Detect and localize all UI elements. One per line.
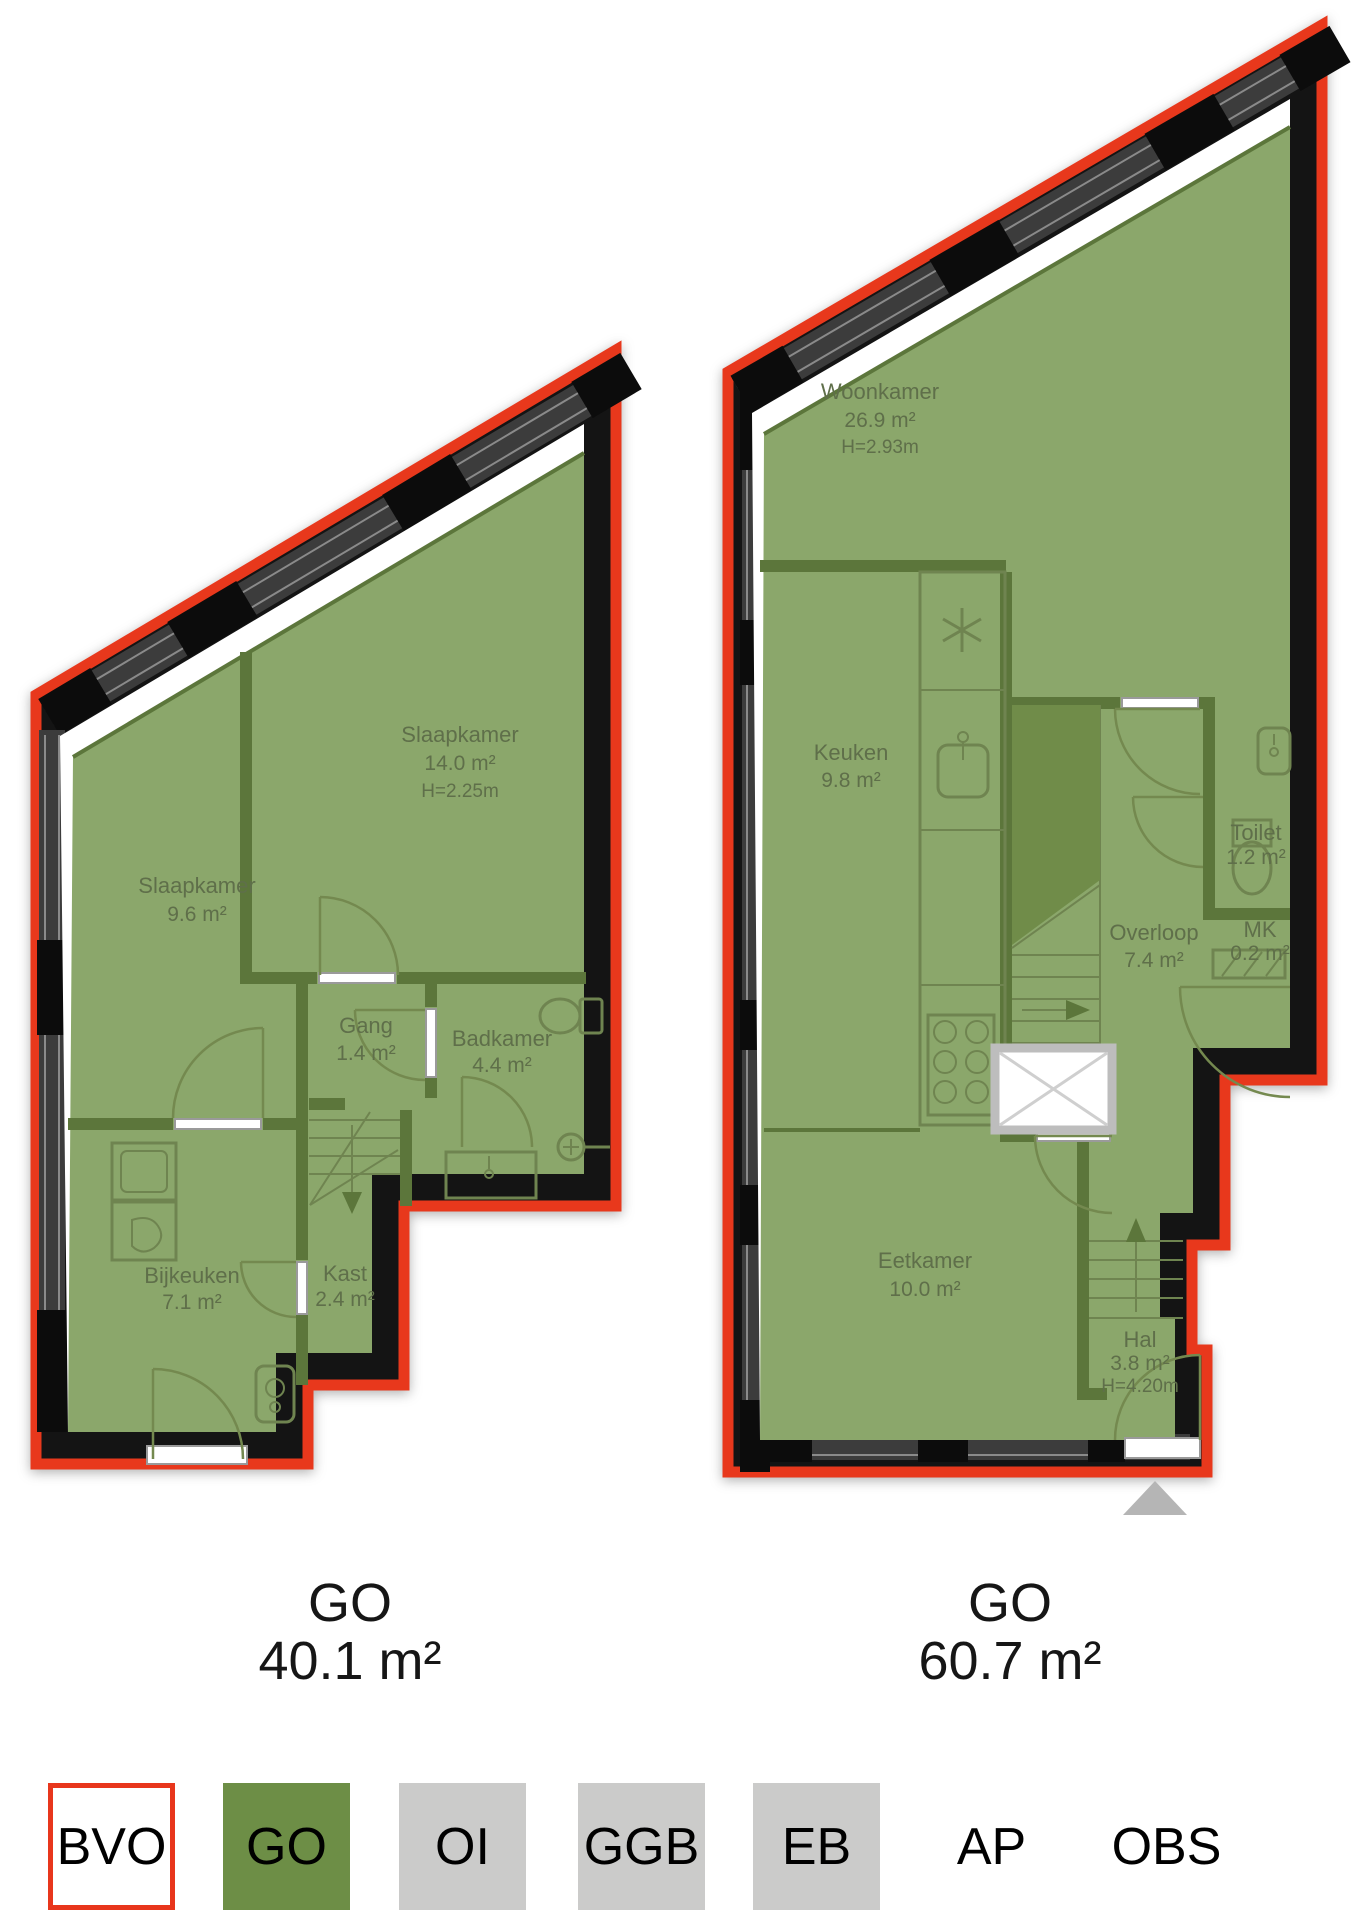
floorplan-page: Slaapkamer 9.6 m² Slaapkamer 14.0 m² H=2… (0, 0, 1358, 1920)
legend-label-ap: AP (957, 1817, 1026, 1877)
legend-label-eb: EB (782, 1817, 851, 1877)
legend-label-bvo: BVO (57, 1817, 167, 1877)
legend-item-ggb: GGB (578, 1783, 705, 1910)
legend-item-ap: AP (928, 1783, 1055, 1910)
legend-item-go: GO (223, 1783, 350, 1910)
legend-item-eb: EB (753, 1783, 880, 1910)
legend-label-go: GO (246, 1817, 327, 1877)
legend-label-oi: OI (435, 1817, 490, 1877)
legend-item-oi: OI (399, 1783, 526, 1910)
legend-item-obs: OBS (1103, 1783, 1230, 1910)
legend: BVO GO OI GGB EB AP OBS (0, 0, 1358, 1920)
legend-label-ggb: GGB (584, 1817, 700, 1877)
legend-item-bvo: BVO (48, 1783, 175, 1910)
legend-label-obs: OBS (1112, 1817, 1222, 1877)
